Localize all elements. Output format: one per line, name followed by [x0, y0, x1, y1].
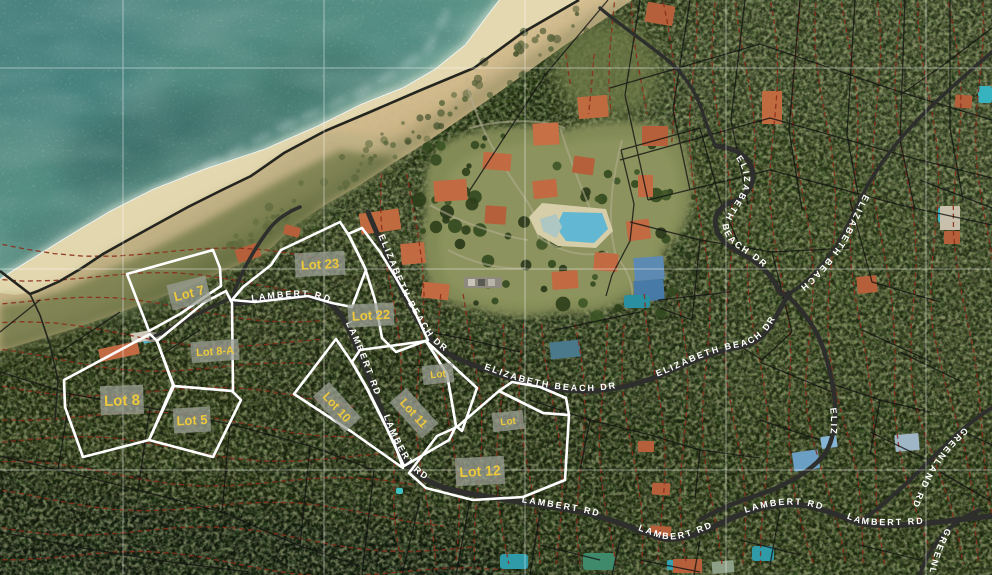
svg-text:Lot 8: Lot 8	[104, 392, 140, 410]
svg-text:Lot 12: Lot 12	[459, 462, 501, 480]
svg-text:ELIZ: ELIZ	[828, 407, 839, 436]
svg-text:Lot: Lot	[430, 369, 447, 382]
svg-text:Lot 23: Lot 23	[300, 256, 339, 273]
svg-text:Lot 22: Lot 22	[351, 307, 390, 324]
svg-text:Lot: Lot	[500, 416, 517, 429]
svg-text:Lot 5: Lot 5	[176, 412, 208, 429]
